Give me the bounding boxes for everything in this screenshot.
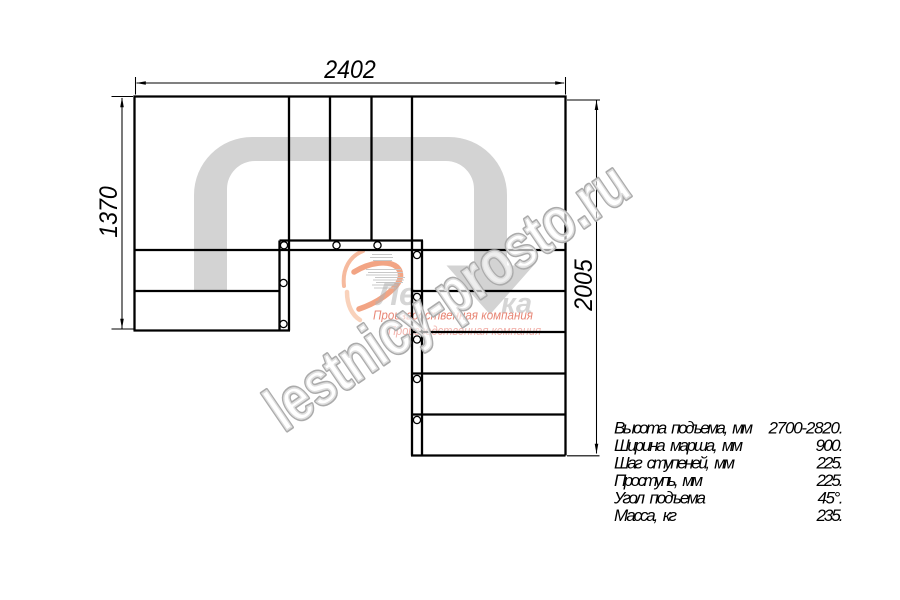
svg-text:2402: 2402	[323, 56, 376, 84]
svg-text:Проступь, мм: Проступь, мм	[614, 471, 703, 490]
svg-text:2700-2820.: 2700-2820.	[768, 419, 844, 438]
svg-text:Угол подъема: Угол подъема	[613, 489, 706, 508]
svg-text:2005: 2005	[570, 259, 598, 312]
svg-text:225.: 225.	[816, 471, 844, 490]
svg-text:900.: 900.	[816, 436, 844, 455]
svg-text:1370: 1370	[95, 186, 123, 238]
svg-text:Шаг ступеней, мм: Шаг ступеней, мм	[614, 454, 735, 473]
svg-text:225.: 225.	[816, 454, 844, 473]
svg-text:235.: 235.	[816, 506, 844, 525]
svg-text:Высота подъема, мм: Высота подъема, мм	[614, 419, 753, 438]
svg-text:Масса, кг: Масса, кг	[614, 506, 677, 525]
svg-text:45°.: 45°.	[818, 489, 844, 508]
svg-text:Ширина марша, мм: Ширина марша, мм	[614, 436, 743, 455]
